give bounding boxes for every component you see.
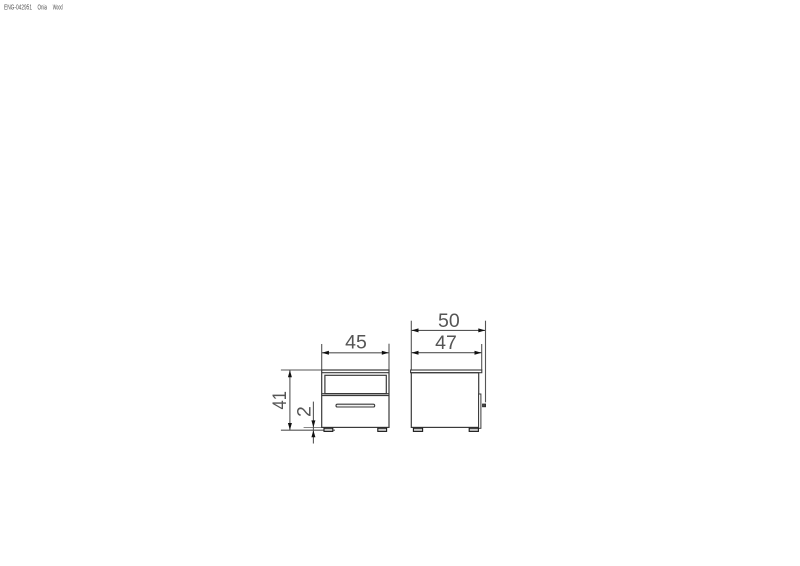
svg-text:50: 50: [438, 310, 460, 332]
svg-text:2: 2: [293, 406, 315, 417]
svg-text:ENG-042951: ENG-042951: [4, 4, 32, 11]
svg-text:45: 45: [345, 332, 367, 354]
svg-text:Wood: Wood: [53, 4, 63, 11]
svg-text:Onia: Onia: [38, 4, 48, 11]
svg-text:47: 47: [435, 332, 457, 354]
svg-text:41: 41: [269, 391, 291, 410]
